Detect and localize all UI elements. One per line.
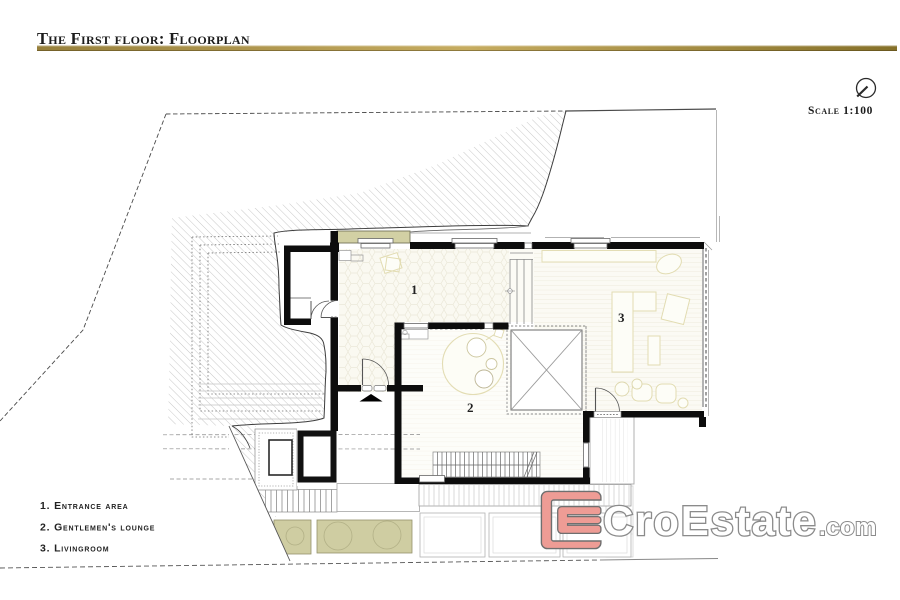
svg-text:CroEstate: CroEstate — [603, 497, 818, 544]
svg-text:The First floor: Floorplan: The First floor: Floorplan — [37, 29, 250, 48]
svg-text:2: 2 — [467, 400, 474, 415]
svg-text:1. Entrance area: 1. Entrance area — [40, 500, 128, 512]
svg-text:1: 1 — [411, 282, 418, 297]
svg-text:.com: .com — [819, 514, 877, 541]
svg-text:3: 3 — [618, 310, 625, 325]
svg-text:Scale 1:100: Scale 1:100 — [808, 105, 873, 117]
svg-text:2. Gentlemen's lounge: 2. Gentlemen's lounge — [40, 522, 155, 534]
svg-text:3. Livingroom: 3. Livingroom — [40, 543, 109, 555]
